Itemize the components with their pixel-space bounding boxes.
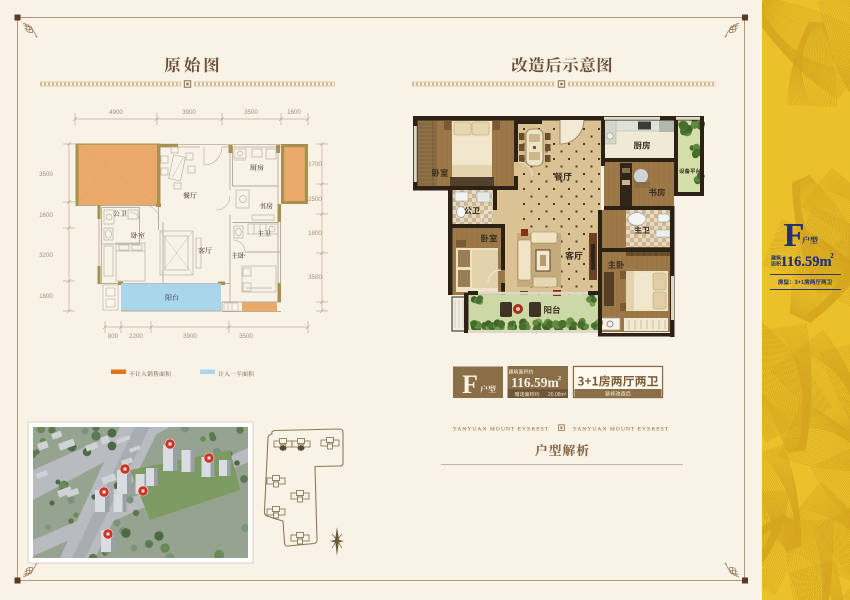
svg-text:2200: 2200	[129, 333, 143, 340]
svg-text:3500: 3500	[39, 171, 53, 178]
svg-text:1600: 1600	[287, 109, 301, 116]
svg-text:1700: 1700	[308, 161, 322, 168]
svg-text:3500: 3500	[244, 109, 258, 116]
svg-text:2500: 2500	[308, 196, 322, 203]
svg-text:2: 2	[558, 375, 561, 382]
svg-text:F: F	[784, 217, 805, 254]
svg-text:1600: 1600	[39, 212, 53, 219]
svg-text:3900: 3900	[183, 333, 197, 340]
svg-text:4900: 4900	[109, 109, 123, 116]
svg-text:116.59m: 116.59m	[511, 375, 559, 390]
svg-text:20.08m²: 20.08m²	[548, 392, 567, 398]
svg-text:F: F	[462, 370, 478, 399]
svg-text:YANYUAN MOUNT EVEREST: YANYUAN MOUNT EVEREST	[573, 427, 669, 433]
svg-text:YANYUAN MOUNT EVEREST: YANYUAN MOUNT EVEREST	[453, 427, 549, 433]
svg-text:800: 800	[108, 333, 119, 340]
svg-text:3900: 3900	[182, 109, 196, 116]
svg-text:1800: 1800	[308, 230, 322, 237]
svg-text:3500: 3500	[308, 274, 322, 281]
svg-text:1800: 1800	[39, 293, 53, 300]
svg-text:116.59m: 116.59m	[780, 254, 831, 270]
svg-text:2: 2	[830, 252, 834, 260]
svg-text:3500: 3500	[239, 333, 253, 340]
svg-text:3200: 3200	[39, 252, 53, 259]
